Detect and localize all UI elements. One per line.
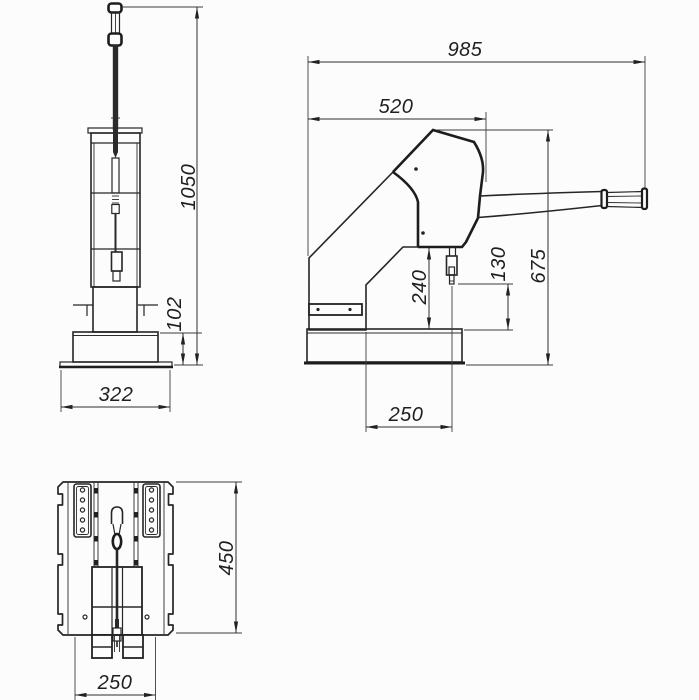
- dim-label-1050: 1050: [178, 164, 200, 211]
- dim-label-250-side: 250: [388, 404, 424, 426]
- base-side: [304, 329, 465, 363]
- technical-drawing-canvas: 1050 102 322: [0, 0, 699, 700]
- dim-label-250-plan: 250: [97, 672, 133, 694]
- dim-overall-height: 1050: [122, 7, 203, 365]
- handle-arm-side: [478, 189, 647, 218]
- dim-label-322: 322: [99, 384, 134, 406]
- punch-side: [447, 247, 458, 284]
- dim-base-length: 250: [366, 286, 452, 432]
- dim-label-520: 520: [379, 96, 414, 118]
- dim-label-675: 675: [528, 248, 550, 283]
- front-view: 1050 102 322: [59, 4, 203, 413]
- side-view: 985 520 675 240 130: [304, 39, 647, 432]
- press-body-front: [73, 128, 158, 332]
- dim-jaw-gap: 240: [409, 248, 431, 329]
- lever-rod-front: [109, 4, 122, 131]
- dim-throat-depth: 130: [458, 247, 513, 330]
- dim-label-985: 985: [448, 39, 483, 61]
- dim-base-height: 102: [160, 297, 202, 365]
- dim-label-240: 240: [409, 270, 431, 306]
- dim-plan-depth: 450: [176, 482, 242, 633]
- dim-label-130: 130: [488, 247, 510, 282]
- press-body-side: [309, 130, 483, 330]
- base-front: [59, 332, 173, 367]
- dim-label-450: 450: [216, 541, 238, 576]
- dim-label-102: 102: [164, 297, 186, 332]
- plan-view: 450 250: [58, 482, 242, 700]
- drawing-svg: 1050 102 322: [0, 0, 699, 700]
- base-plate-plan: [58, 482, 173, 635]
- dim-base-width: 322: [61, 370, 170, 412]
